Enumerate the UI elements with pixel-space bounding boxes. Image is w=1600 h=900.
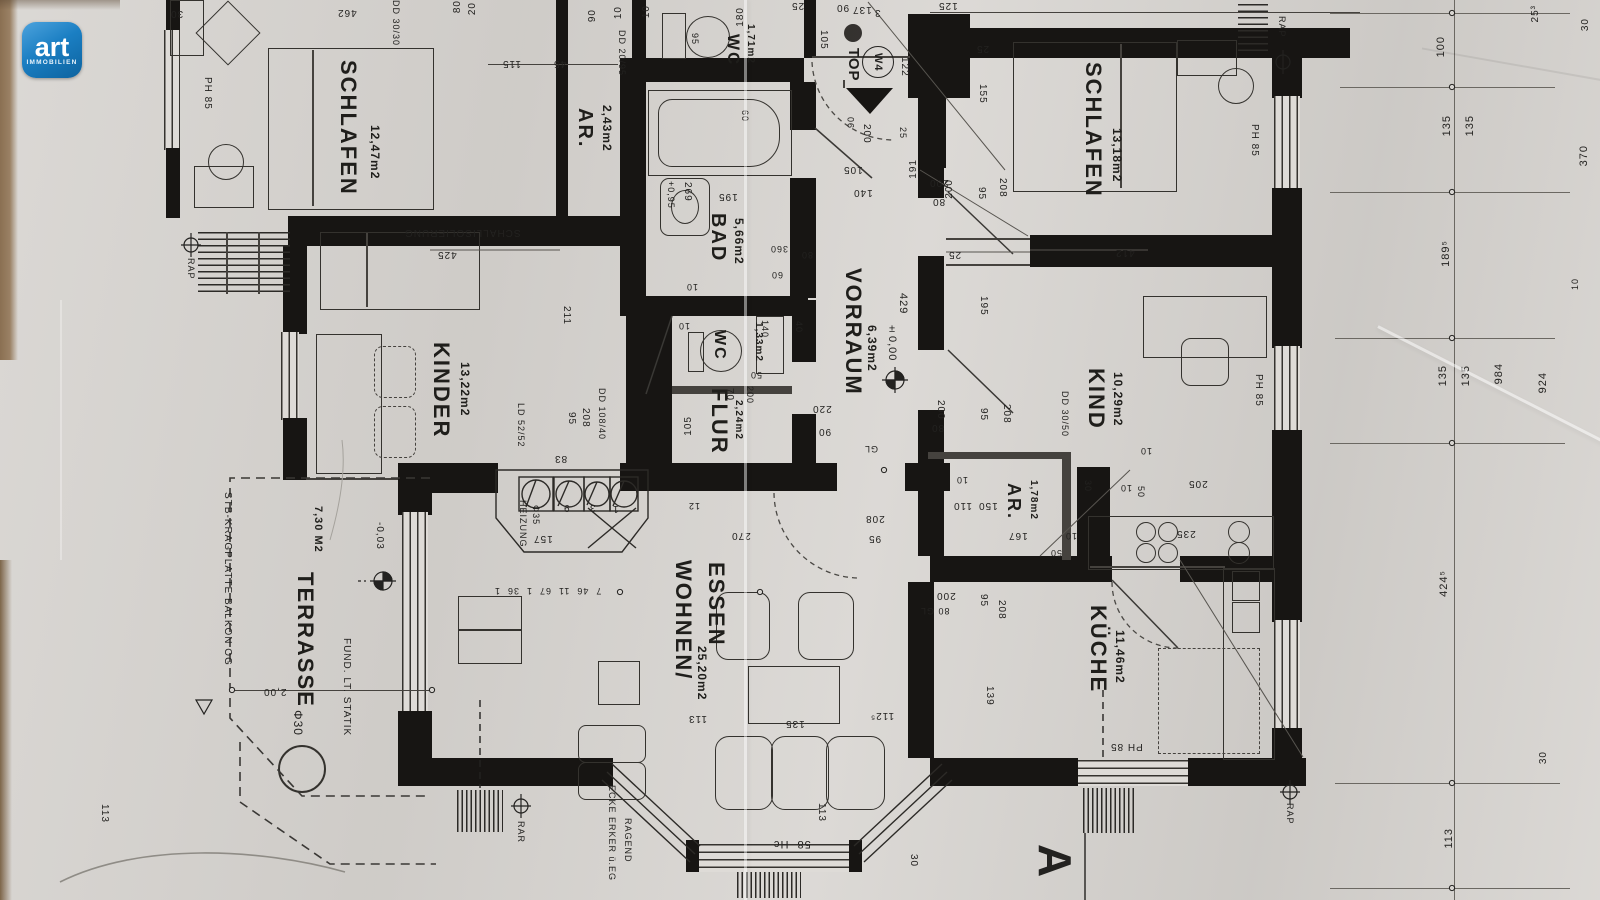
room-area-schlafen-1: 12,47m2 [368,125,382,179]
room-area-kinder: 13,22m2 [458,362,472,416]
dimension-label: 95 [566,412,577,425]
dimension-label: 150 [978,500,998,511]
dimension-label: 462 [337,7,357,18]
furniture-outline [798,592,854,660]
dimension-label: 30 [1083,480,1093,492]
furniture-outline [1158,648,1260,754]
room-area-kueche: 11,46m2 [1113,630,1127,684]
wall-segment [905,463,950,491]
wall-segment [1030,235,1280,267]
dimension-label: 30 [1580,18,1591,31]
dimension-label: 58 Hc [773,838,811,850]
dimension-label: 195 [978,296,989,316]
dimension-label: 95 [978,408,989,421]
dimension-label: PH 85 [1249,124,1260,157]
dimension-label: PH 85 [202,77,213,110]
furniture-outline [194,166,254,208]
wall-segment [790,82,816,130]
dimension-label: LD 52/52 [516,403,526,448]
dimension-label: 220 [812,403,832,414]
desk [316,334,382,474]
wall-segment [918,482,944,556]
wall-segment [398,463,498,493]
dimension-label: 984 [1493,363,1505,384]
room-label-essen: ESSEN [703,562,729,647]
dimension-label: 25³ [1530,5,1541,22]
paper-crease [60,300,62,560]
drawing-line [930,12,1360,13]
dimension-label: 95 [868,533,881,544]
dimension-label: +0,95 [666,181,676,209]
window [1274,620,1300,730]
dimension-label: 80 [452,0,463,13]
sofa-seat [771,736,829,810]
room-area-ar-1: 2,43m2 [600,105,614,152]
dimension-label: 10 [956,475,968,485]
dimension-label: RAR [516,821,526,843]
dimension-label: 100 [1435,36,1447,57]
dimension-label: 3 [589,502,596,513]
room-label-wc-1: WC [723,34,743,66]
dimension-label: 50 [1136,486,1146,498]
dimension-label: 115 [502,58,521,69]
paper-edge [0,0,120,10]
dimension-label: 90 [818,426,831,437]
sink [1232,571,1260,601]
wall-segment [804,0,816,58]
dimension-label: 10 [1065,531,1077,541]
room-area-vorraum: 6,39m2 [865,325,879,372]
furniture-outline [320,232,480,310]
dimension-label: 270 [731,530,751,541]
unit-top-label: TOP [845,48,862,82]
dimension-label: 90 [836,2,849,13]
furniture-outline [1136,522,1156,542]
furniture-outline [458,630,522,664]
dimension-label: 70 [724,388,735,401]
dimension-label: 269 [682,182,693,202]
dimension-label: 424⁵ [1438,570,1450,597]
dimension-label: 95 [690,33,700,45]
chair [1181,338,1229,386]
dimension-label: ECKE ERKER ü.EG [607,785,617,881]
sofa-seat [826,736,885,810]
room-label-kinder: KINDER [428,342,454,438]
wall-segment [930,556,1112,582]
unit-number: W4 [872,53,884,72]
wall-segment [686,840,699,872]
room-area-wc-1: 1,71m2 [745,24,756,64]
dimension-label: Φ35 [531,505,541,525]
room-label-bad: BAD [706,213,729,262]
entrance-arrow-icon [846,88,893,114]
drawing-line [1330,888,1570,889]
dimension-label: 425 [437,249,457,260]
drawing-line [366,233,368,307]
dimension-label: 167 [1008,530,1028,541]
furniture-outline [598,661,640,705]
sofa-seat [715,736,773,810]
wall-segment [849,840,862,872]
dimension-label: DD 108/40 [597,388,607,440]
dimension-label: 95 [978,594,989,607]
dimension-label: 83 [554,453,567,464]
dimension-label: HEIZUNG [518,500,528,548]
dimension-label: 12 [688,501,700,511]
dimension-label: ±0,00 [886,323,898,361]
wall-segment [1272,188,1302,348]
furniture-outline [458,596,522,630]
dimension-label: 412 [1115,247,1135,258]
floorplan-photo: SCHLAFEN 12,47m2 AR. 2,43m2 WC 1,71m2 BA… [0,0,1600,900]
dimension-label: 208 [996,600,1007,620]
dimension-label: 10 [1120,483,1132,493]
dimension-label: STB-KRAGPLATTE BALKON OG [222,492,233,666]
dimension-label: 9 [563,502,570,513]
room-area-schlafen-2: 13,18m2 [1110,128,1124,182]
drawing-line [232,690,432,691]
dimension-label: 360 [770,244,788,254]
dimension-label: DD 30/30 [391,0,401,46]
dimension-label: 180 [735,7,746,27]
drawing-line [1335,338,1555,339]
dimension-label: SCHALLISOLIERUNG [404,227,521,238]
dimension-label: 80 [801,250,813,260]
window [1274,346,1300,432]
wall-segment [918,98,946,168]
dimension-label: 137 [852,4,872,15]
dimension-label: 200 [936,590,956,601]
dimension-label: FUND. LT. STATIK [341,638,352,736]
chair [374,346,416,398]
room-area-terrasse: 7,30 M2 [312,506,324,553]
dimension-label: 10 [678,321,690,331]
dimension-label: 113 [816,803,827,822]
dimension-label: 191 [908,159,919,179]
dimension-label: 10 [1140,446,1152,456]
window [1274,96,1300,190]
dimension-label: 189⁵ [1440,240,1452,267]
wall-segment [646,316,672,468]
furniture-outline [662,13,686,59]
wall-segment [918,256,944,350]
dimension-label: 80 [931,422,944,433]
room-area-kind: 10,29m2 [1111,372,1125,426]
paper-edge [0,560,12,900]
dimension-label: 20 [467,2,478,15]
wall-segment [792,414,816,470]
drawing-line [1330,443,1565,444]
dimension-label: 135 [1460,365,1472,386]
dimension-label: 135 [785,718,805,729]
section-cut-hatch [737,872,801,898]
dimension-label: 105 [818,30,829,50]
dimension-label: 155 [977,84,988,104]
dimension-label: 122 [899,57,910,77]
balcony-railing-hatch [198,232,290,294]
dimension-label: -0,03 [374,522,385,550]
room-label-kind: KIND [1083,368,1109,430]
dimension-label: PH 85 [1253,374,1264,407]
dimension-label: 80 GL [920,606,950,616]
drawing-line [1335,783,1560,784]
unit-number-circle: W4 [862,46,894,78]
drawing-line [843,80,845,88]
chair [374,406,416,458]
wall-segment [620,296,808,316]
dimension-label: RAGEND [623,818,633,863]
dimension-label: 95 [976,187,987,200]
room-area-wohnen: 25,20m2 [695,646,709,700]
dimension-label: DD 20/95 [617,30,627,76]
wall-segment [1188,758,1306,786]
drawing-line [946,238,1030,240]
agency-logo: art IMMOBILIEN [22,22,82,78]
dimension-label: 140 [853,187,873,198]
dimension-label: 60 [771,270,783,280]
drawing-line [226,232,228,294]
dimension-label: 50 [1050,548,1062,558]
furniture-outline [1158,522,1178,542]
section-cut-hatch [1083,788,1137,833]
wall-segment [1272,430,1302,622]
dimension-label: 105 [843,164,863,175]
drawing-line [1062,452,1071,560]
wardrobe [195,0,260,65]
section-cut-hatch [457,790,503,832]
dimension-label: 235 [1176,528,1196,539]
dimension-label: 30 [908,854,919,867]
dimension-label: 3 [874,7,881,18]
dimension-label: 113 [99,804,110,823]
room-label-wohnen: WOHNEN/ [670,560,696,680]
dimension-label: 10 [613,6,624,19]
furniture-outline [578,725,646,763]
drawing-line [946,264,1030,266]
dimension-label: 208 [580,408,591,428]
dimension-label: 205 [1188,478,1208,489]
dimension-label: 60 [740,110,750,122]
dimension-label: 90 [846,116,856,128]
sink [1232,602,1260,633]
furniture-outline [1228,542,1250,564]
wall-segment [283,418,307,480]
dimension-label: 7 46 11 67 1 36 1 [494,586,601,596]
dimension-label: 10 [686,282,698,292]
wall-segment [1272,58,1302,98]
room-label-schlafen-2: SCHLAFEN [1080,62,1106,198]
drawing-line [312,50,314,206]
dimension-label: 30 [170,8,183,19]
dimension-label: 80 [932,196,945,207]
dimension-label: RAP [186,258,196,280]
dimension-label: 195 [718,191,738,202]
agency-logo-brand: art [35,35,70,59]
furniture-outline [1218,68,1254,104]
dimension-label: 200 [861,124,872,144]
dimension-label: 370 [1578,145,1590,166]
dimension-label: 2,00 [263,686,286,697]
wall-segment [620,58,646,216]
wall-segment [166,148,180,218]
room-area-bad: 5,66m2 [732,218,746,265]
wall-segment [930,758,1078,786]
column [278,745,326,793]
dimension-label: 113 [688,713,707,724]
room-area-ar-2: 1,78m2 [1028,480,1039,520]
dimension-label: 10 [1570,278,1580,290]
dimension-label: 105 [683,416,694,436]
room-label-schlafen-1: SCHLAFEN [335,60,361,196]
dimension-label: 30 [1538,751,1549,764]
window [1078,760,1188,786]
wall-segment [620,463,837,491]
dimension-label: 135 [1441,115,1453,136]
dimension-label: RAP [1277,16,1287,38]
drawing-line [306,478,398,480]
section-letter: A [1028,844,1082,877]
dimension-label: 125 [938,0,958,11]
dimension-label: RAP [1285,803,1295,825]
dimension-label: 45 [553,58,566,69]
bathtub [658,99,780,167]
room-label-kueche: KÜCHE [1085,605,1111,693]
room-label-terrasse: TERRASSE [292,572,318,708]
dimension-label: PH 85 [1110,741,1143,752]
dimension-label: 50 [750,370,762,380]
drawing-line [1340,87,1555,88]
dimension-label: 200 [935,400,946,420]
dimension-label: 924 [1537,372,1549,393]
window [402,512,428,712]
dimension-label: 10 [641,5,652,18]
dimension-label: 139 [984,686,995,706]
dimension-label: 208 [997,178,1008,198]
wall-segment [626,246,646,466]
dining-table [748,666,840,724]
dimension-label: 211 [561,306,572,325]
dimension-label: GL [864,444,878,454]
wall-segment [556,0,568,216]
paper-edge [0,0,18,360]
dimension-label: 40 [794,321,804,333]
dimension-label: 1 [612,503,619,514]
drawing-line [258,232,260,294]
dimension-label: DD 30/50 [1060,391,1070,437]
wall-segment [790,178,816,298]
dimension-label: 25 [791,0,804,11]
dimension-label: 25 [976,43,989,54]
drawing-line [1330,192,1570,193]
furniture-outline [1228,521,1250,543]
paper-crease [1377,325,1600,477]
dimension-label: 200 [745,386,755,404]
room-label-ar-1: AR. [573,108,596,148]
dimension-label: Φ30 [291,710,305,736]
dimension-label: 90 [587,9,598,22]
room-label-ar-2: AR. [1003,483,1024,520]
dimension-label: 429 [897,293,909,314]
dimension-label: 208 [1001,404,1012,424]
drawing-line [1454,0,1455,900]
dimension-label: 157 [533,533,553,544]
dimension-label: 112⁵ [870,710,894,721]
furniture-outline [1136,543,1156,563]
dimension-label: 200 [929,177,949,188]
dimension-label: 140 [760,320,770,338]
dimension-label: 25 [898,127,908,139]
dimension-label: 135 [1437,365,1449,386]
room-label-wc-2: WC [710,330,728,361]
dimension-label: 110 [953,500,972,511]
drawing-line [928,452,1068,459]
window [281,332,299,420]
dimension-label: 135 [1464,115,1476,136]
railing-hatch [1238,4,1268,56]
dimension-label: 208 [865,513,885,524]
dimension-label: 113 [1443,828,1455,849]
dimension-label: 25 [948,249,961,260]
furniture-outline [1158,543,1178,563]
agency-logo-subtitle: IMMOBILIEN [27,59,78,66]
room-area-flur: 2,24m2 [733,400,744,440]
room-label-vorraum: VORRAUM [840,268,866,396]
